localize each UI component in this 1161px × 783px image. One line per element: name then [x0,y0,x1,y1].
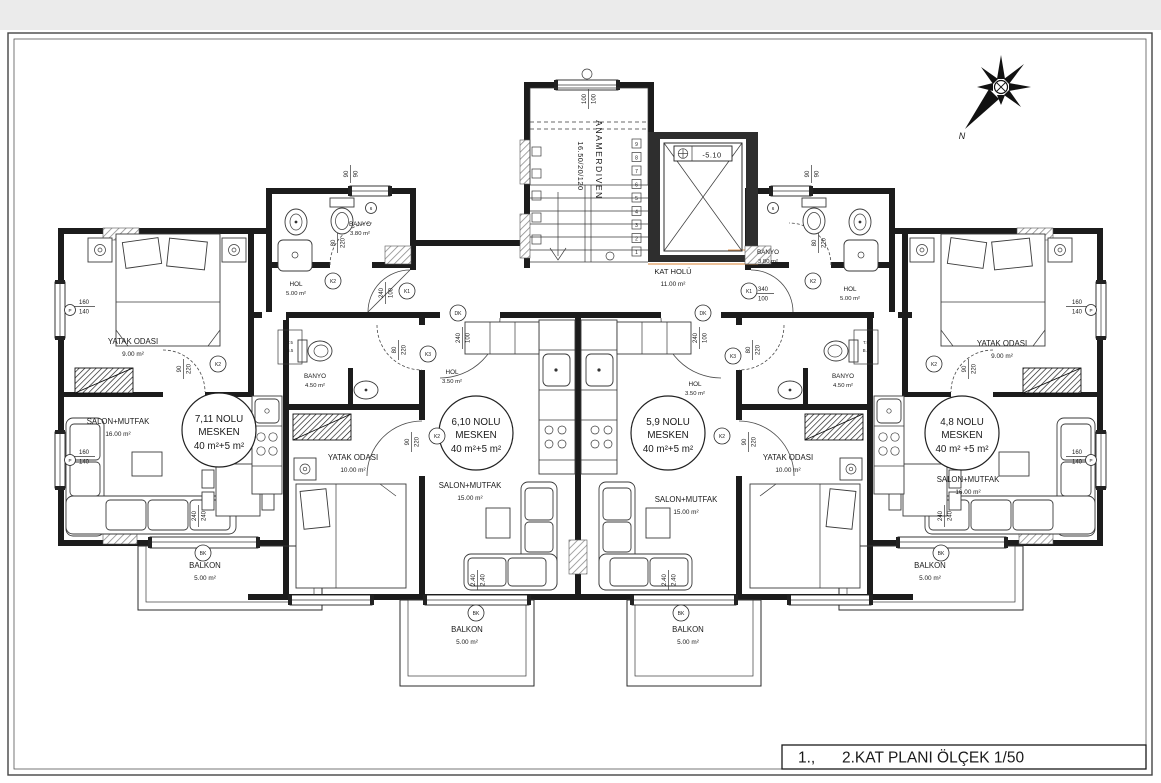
svg-text:240: 240 [192,510,198,521]
window [1096,280,1106,340]
svg-text:BALKON: BALKON [189,561,221,570]
window [55,280,65,340]
svg-text:240: 240 [202,510,208,521]
window [787,595,873,605]
door-tag: DK [695,305,711,321]
door-tag: K1 [741,283,757,299]
svg-text:P: P [1089,308,1092,313]
svg-text:DK: DK [455,311,463,317]
svg-text:YATAK ODASI: YATAK ODASI [328,453,378,462]
svg-text:220: 220 [972,363,978,374]
svg-text:15.00 m²: 15.00 m² [457,495,482,502]
shaft-label: T.5 [863,340,869,345]
svg-text:5.00 m²: 5.00 m² [286,291,306,297]
svg-text:220: 220 [822,237,828,248]
svg-text:140: 140 [1072,310,1083,316]
step-number: 5 [635,196,638,202]
svg-text:9.00 m²: 9.00 m² [122,351,144,358]
svg-text:YATAK ODASI: YATAK ODASI [977,339,1027,348]
riser-tag: 6 [366,203,377,214]
svg-text:HOL: HOL [446,369,459,376]
svg-text:3.80 m²: 3.80 m² [758,259,778,265]
svg-text:140: 140 [1072,460,1083,466]
svg-text:16.00 m²: 16.00 m² [105,431,130,438]
svg-text:5.00 m²: 5.00 m² [677,639,699,646]
svg-text:100: 100 [466,332,472,343]
title-prefix: 1., [798,750,815,767]
svg-text:K1: K1 [746,289,752,295]
svg-text:2.40: 2.40 [481,574,487,586]
svg-text:220: 220 [187,363,193,374]
svg-text:160: 160 [1072,450,1083,456]
step-number: 8 [635,156,638,162]
title-text: 2.KAT PLANI ÖLÇEK 1/50 [842,749,1024,767]
svg-text:BALKON: BALKON [451,625,483,634]
svg-text:40 m²+5 m²: 40 m²+5 m² [643,444,694,455]
unit-circle-711: 7,11 NOLU MESKEN 40 m²+5 m² [182,393,256,467]
shaft-label: B.5 [863,348,870,353]
svg-text:10.00 m²: 10.00 m² [340,467,365,474]
svg-text:140: 140 [79,460,90,466]
svg-text:MESKEN: MESKEN [647,430,688,441]
svg-text:90: 90 [805,170,811,177]
svg-text:80: 80 [392,346,398,353]
svg-text:MESKEN: MESKEN [941,430,982,441]
step-number: 7 [635,169,638,175]
door-tag: K2 [210,356,226,372]
balcony-door [423,595,531,605]
svg-text:BANYO: BANYO [349,221,371,228]
svg-text:9.00 m²: 9.00 m² [991,353,1013,360]
svg-text:4.50 m²: 4.50 m² [833,383,853,389]
door-tag: BK [468,605,484,621]
door-tag: K2 [926,356,942,372]
window-tag: P [1086,455,1097,466]
svg-text:7,11 NOLU: 7,11 NOLU [195,414,243,425]
step-number: 9 [635,142,638,148]
svg-text:220: 220 [402,344,408,355]
shaft-label: B.5 [287,348,294,353]
svg-text:90: 90 [354,170,360,177]
door-tag: K3 [725,348,741,364]
svg-text:K2: K2 [215,362,221,368]
door-tag: K2 [429,428,445,444]
svg-text:BANYO: BANYO [757,249,779,256]
svg-text:240: 240 [693,332,699,343]
window [769,186,813,196]
svg-text:90: 90 [344,170,350,177]
shaft-label: T.5 [287,340,293,345]
svg-text:K2: K2 [434,434,440,440]
svg-text:DK: DK [700,311,708,317]
svg-text:HOL: HOL [689,381,702,388]
svg-text:K3: K3 [730,354,736,360]
svg-text:2.40: 2.40 [662,574,668,586]
window [1096,430,1106,490]
svg-text:K3: K3 [425,352,431,358]
svg-text:100: 100 [758,297,769,303]
floor-plan-svg: ANAMERDIVEN 16.50/20/120 1 2 3 4 5 6 7 8… [0,0,1161,783]
svg-text:80: 80 [812,239,818,246]
window [55,430,65,490]
unit-circle-59: 5,9 NOLU MESKEN 40 m²+5 m² [631,396,705,470]
svg-text:40 m²+5 m²: 40 m²+5 m² [451,444,502,455]
svg-text:5.00 m²: 5.00 m² [456,639,478,646]
svg-text:HOL: HOL [290,281,303,288]
svg-text:160: 160 [79,300,90,306]
svg-text:40 m² +5 m²: 40 m² +5 m² [935,444,989,455]
svg-text:6: 6 [772,206,775,211]
svg-text:BANYO: BANYO [304,373,326,380]
svg-text:BK: BK [473,611,480,617]
svg-text:SALON+MUTFAK: SALON+MUTFAK [937,475,1000,484]
title-block: 1., 2.KAT PLANI ÖLÇEK 1/50 [782,745,1146,769]
svg-text:340: 340 [758,287,769,293]
svg-text:90: 90 [742,438,748,445]
svg-text:220: 220 [756,344,762,355]
window-tag: P [1086,305,1097,316]
svg-text:16.00 m²: 16.00 m² [955,489,980,496]
svg-text:6,10 NOLU: 6,10 NOLU [451,417,500,428]
window [348,186,392,196]
unit-circle-48: 4,8 NOLU MESKEN 40 m² +5 m² [925,396,999,470]
svg-text:3.50 m²: 3.50 m² [442,379,462,385]
svg-text:K2: K2 [719,434,725,440]
svg-text:4.50 m²: 4.50 m² [305,383,325,389]
svg-text:P: P [68,458,71,463]
drawing-sheet: ANAMERDIVEN 16.50/20/120 1 2 3 4 5 6 7 8… [0,0,1161,783]
svg-text:BK: BK [678,611,685,617]
svg-text:160: 160 [1072,300,1083,306]
svg-text:MESKEN: MESKEN [455,430,496,441]
svg-text:80: 80 [331,239,337,246]
window [288,595,374,605]
svg-text:160: 160 [79,450,90,456]
door-tag: K1 [399,283,415,299]
svg-text:3.50 m²: 3.50 m² [685,391,705,397]
svg-text:240: 240 [938,510,944,521]
door-tag: K2 [714,428,730,444]
step-number: 3 [635,223,638,229]
north-label: N [959,131,966,141]
door-tag: BK [673,605,689,621]
svg-text:BK: BK [938,551,945,557]
svg-text:40 m²+5 m²: 40 m²+5 m² [194,441,245,452]
stair-name-label: ANAMERDIVEN [594,120,604,200]
svg-text:2.40: 2.40 [471,574,477,586]
svg-text:4,8 NOLU: 4,8 NOLU [940,417,984,428]
svg-text:10.00 m²: 10.00 m² [775,467,800,474]
svg-text:BALKON: BALKON [914,561,946,570]
unit-circle-610: 6,10 NOLU MESKEN 40 m²+5 m² [439,396,513,470]
svg-text:P: P [68,308,71,313]
svg-text:140: 140 [79,310,90,316]
door-tag: K2 [805,273,821,289]
svg-text:BALKON: BALKON [672,625,704,634]
svg-text:100: 100 [703,332,709,343]
svg-text:90: 90 [405,438,411,445]
svg-text:90: 90 [177,365,183,372]
step-number: 4 [635,210,638,216]
balcony-door [896,537,1008,548]
svg-text:220: 220 [415,436,421,447]
svg-text:P: P [1089,458,1092,463]
svg-text:240: 240 [456,332,462,343]
svg-text:5.00 m²: 5.00 m² [840,296,860,302]
svg-text:K2: K2 [931,362,937,368]
step-number: 2 [635,237,638,243]
svg-text:11.00 m²: 11.00 m² [661,281,686,288]
svg-text:240: 240 [948,510,954,521]
svg-text:HOL: HOL [844,286,857,293]
svg-text:SALON+MUTFAK: SALON+MUTFAK [655,495,718,504]
window-tag: P [65,305,76,316]
svg-text:5.00 m²: 5.00 m² [194,575,216,582]
svg-text:3.80 m²: 3.80 m² [350,231,370,237]
svg-text:220: 220 [752,436,758,447]
svg-text:BANYO: BANYO [832,373,854,380]
svg-text:5,9 NOLU: 5,9 NOLU [646,417,690,428]
door-tag: BK [933,545,949,561]
svg-text:KAT HOLÜ: KAT HOLÜ [654,267,691,276]
svg-text:15.00 m²: 15.00 m² [673,509,698,516]
elevator-level-label: -5.10 [702,151,721,160]
svg-text:80: 80 [746,346,752,353]
svg-text:240: 240 [379,287,385,298]
svg-text:MESKEN: MESKEN [198,427,239,438]
svg-text:YATAK ODASI: YATAK ODASI [108,337,158,346]
svg-text:K2: K2 [810,279,816,285]
door-tag: BK [195,545,211,561]
window-tag: P [65,455,76,466]
svg-text:90: 90 [815,170,821,177]
svg-text:SALON+MUTFAK: SALON+MUTFAK [87,417,150,426]
svg-text:YATAK ODASI: YATAK ODASI [763,453,813,462]
svg-text:2.40: 2.40 [672,574,678,586]
svg-text:100: 100 [582,93,588,104]
svg-text:6: 6 [370,206,373,211]
step-number: 6 [635,183,638,189]
svg-text:K1: K1 [404,289,410,295]
svg-text:K2: K2 [330,279,336,285]
window [554,80,620,90]
door-tag: DK [450,305,466,321]
svg-text:90: 90 [962,365,968,372]
door-tag: K3 [420,346,436,362]
balcony-door [630,595,738,605]
svg-text:BK: BK [200,551,207,557]
stair-dim-label: 16.50/20/120 [576,141,585,190]
svg-text:5.00 m²: 5.00 m² [919,575,941,582]
svg-text:220: 220 [341,237,347,248]
svg-text:SALON+MUTFAK: SALON+MUTFAK [439,481,502,490]
step-number: 1 [635,250,638,256]
svg-text:100: 100 [389,287,395,298]
riser-tag: 6 [768,203,779,214]
door-tag: K2 [325,273,341,289]
svg-text:100: 100 [592,93,598,104]
